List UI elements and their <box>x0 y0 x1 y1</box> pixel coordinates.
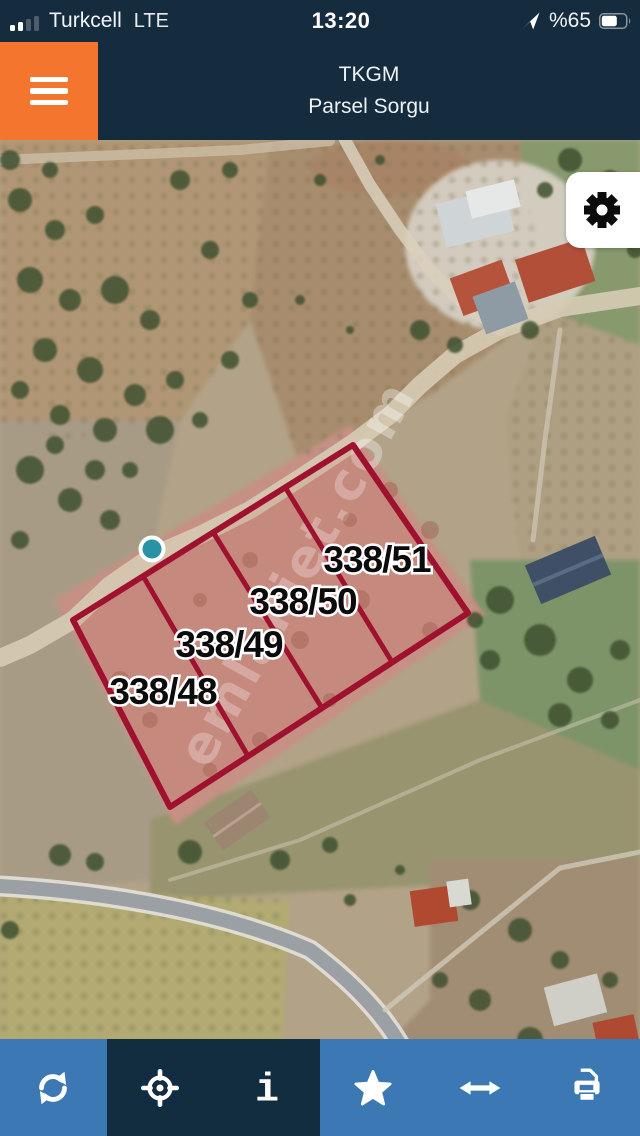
info-icon: i <box>244 1065 290 1111</box>
network-label: LTE <box>134 10 169 33</box>
refresh-button[interactable] <box>0 1039 107 1136</box>
signal-bars-icon <box>10 15 39 31</box>
app-header: TKGM Parsel Sorgu <box>0 42 640 140</box>
location-dot <box>139 536 166 563</box>
print-button[interactable] <box>533 1039 640 1136</box>
parcel-label-48: 338/48 <box>109 671 217 712</box>
page-title: TKGM Parsel Sorgu <box>98 42 640 140</box>
battery-percent-label: %65 <box>549 9 591 33</box>
print-icon <box>564 1065 610 1111</box>
carrier-label: Turkcell <box>49 9 122 33</box>
status-bar: Turkcell LTE 13:20 %65 <box>0 0 640 42</box>
settings-button[interactable] <box>566 172 640 248</box>
menu-button[interactable] <box>0 42 98 140</box>
bottom-toolbar: i <box>0 1039 640 1136</box>
parcel-label-51: 338/51 <box>323 539 431 580</box>
info-button[interactable]: i <box>213 1039 320 1136</box>
map-canvas[interactable]: emlakjet.com 338/48 338/49 338/50 338/51 <box>0 140 640 1039</box>
measure-button[interactable] <box>427 1039 534 1136</box>
battery-icon <box>599 13 632 29</box>
parcel-label-49: 338/49 <box>175 624 283 665</box>
favorites-button[interactable] <box>320 1039 427 1136</box>
clock: 13:20 <box>200 8 482 34</box>
svg-text:i: i <box>255 1067 279 1110</box>
resize-horizontal-icon <box>457 1065 503 1111</box>
locate-button[interactable] <box>107 1039 214 1136</box>
location-arrow-icon <box>521 11 541 31</box>
star-icon <box>350 1065 396 1111</box>
parcel-label-50: 338/50 <box>249 581 357 622</box>
refresh-icon <box>30 1065 76 1111</box>
gear-icon <box>580 188 624 232</box>
locate-icon <box>137 1065 183 1111</box>
title-line2: Parsel Sorgu <box>308 91 429 123</box>
title-line1: TKGM <box>339 59 400 91</box>
